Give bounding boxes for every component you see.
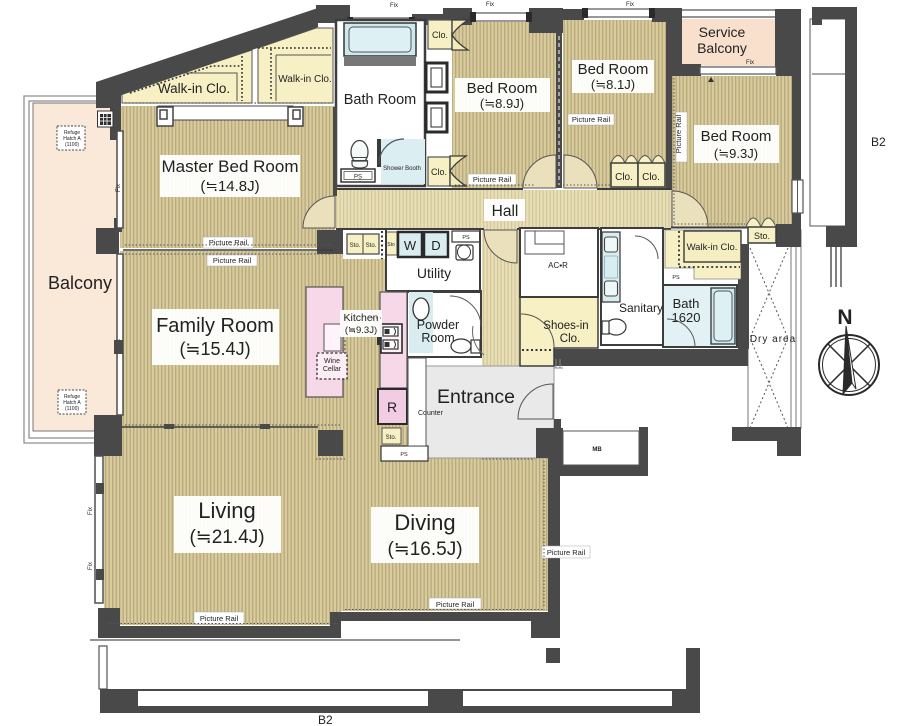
svg-text:(≒15.4J): (≒15.4J) xyxy=(179,339,250,359)
svg-text:Cellar: Cellar xyxy=(323,366,342,373)
svg-text:Picture Rail: Picture Rail xyxy=(674,115,683,154)
svg-text:Picture Rail: Picture Rail xyxy=(209,238,248,247)
svg-text:Room: Room xyxy=(421,331,454,345)
svg-text:PS: PS xyxy=(400,452,408,458)
svg-text:(≒16.5J): (≒16.5J) xyxy=(387,539,462,560)
svg-text:Clo.: Clo. xyxy=(615,172,633,183)
svg-text:(≒9.3J): (≒9.3J) xyxy=(714,146,758,161)
svg-text:Wine: Wine xyxy=(324,358,340,365)
svg-text:Fix: Fix xyxy=(116,184,122,192)
svg-text:(≒14.8J): (≒14.8J) xyxy=(200,178,259,195)
svg-text:PS: PS xyxy=(672,275,680,281)
svg-text:W: W xyxy=(404,238,417,253)
svg-text:R: R xyxy=(387,399,397,415)
svg-text:(1100): (1100) xyxy=(65,142,79,148)
svg-text:Sto.: Sto. xyxy=(366,243,377,249)
svg-text:AC▪R: AC▪R xyxy=(548,261,568,270)
svg-text:Picture Rail: Picture Rail xyxy=(547,548,586,557)
svg-text:Bed Room: Bed Room xyxy=(578,61,649,78)
svg-text:Picture Rail: Picture Rail xyxy=(572,115,611,124)
svg-text:Sto.: Sto. xyxy=(386,435,397,441)
svg-text:Hall: Hall xyxy=(492,203,519,220)
svg-text:Entrance: Entrance xyxy=(437,386,515,408)
svg-text:Bath: Bath xyxy=(673,296,700,311)
svg-text:Sto.: Sto. xyxy=(754,231,770,241)
svg-text:Fix: Fix xyxy=(390,3,398,9)
svg-text:Sto: Sto xyxy=(387,242,395,248)
svg-text:Bed Room: Bed Room xyxy=(467,80,538,97)
svg-text:Powder: Powder xyxy=(417,318,459,332)
svg-text:Counter: Counter xyxy=(418,410,444,417)
svg-text:Clo.: Clo. xyxy=(560,333,580,345)
svg-text:(≒8.9J): (≒8.9J) xyxy=(480,96,524,111)
svg-text:Master Bed Room: Master Bed Room xyxy=(162,157,299,176)
svg-text:MB: MB xyxy=(592,447,602,453)
svg-text:Fix: Fix xyxy=(88,562,94,570)
svg-text:Shower Booth: Shower Booth xyxy=(383,166,421,172)
svg-text:(≒8.1J): (≒8.1J) xyxy=(591,77,635,92)
svg-text:Clo.: Clo. xyxy=(431,167,447,177)
svg-text:Sto.: Sto. xyxy=(350,243,361,249)
svg-text:1620: 1620 xyxy=(672,310,701,325)
svg-text:Clo.: Clo. xyxy=(642,172,660,183)
svg-text:Walk-in Clo.: Walk-in Clo. xyxy=(158,81,230,96)
svg-text:Diving: Diving xyxy=(394,510,455,535)
svg-text:Dry area: Dry area xyxy=(750,334,796,345)
svg-text:Fix: Fix xyxy=(486,2,494,8)
svg-text:Fix: Fix xyxy=(746,60,754,66)
svg-text:Walk-in Clo.: Walk-in Clo. xyxy=(687,242,738,253)
svg-text:PS: PS xyxy=(354,175,362,181)
svg-text:(≒21.4J): (≒21.4J) xyxy=(189,527,264,548)
svg-text:B2: B2 xyxy=(871,135,886,149)
svg-text:Picture Rail: Picture Rail xyxy=(473,175,512,184)
svg-text:Bath Room: Bath Room xyxy=(344,92,417,108)
svg-text:Balcony: Balcony xyxy=(697,40,747,56)
svg-text:Balcony: Balcony xyxy=(48,273,112,293)
svg-text:B2: B2 xyxy=(318,713,333,726)
svg-text:Service: Service xyxy=(699,24,746,40)
svg-text:Living: Living xyxy=(198,498,255,523)
svg-text:Shoes-in: Shoes-in xyxy=(543,320,588,332)
svg-text:(≒9.3J): (≒9.3J) xyxy=(345,325,377,336)
svg-text:Fix: Fix xyxy=(626,2,634,8)
svg-text:Walk-in Clo.: Walk-in Clo. xyxy=(278,74,332,85)
svg-text:Picture Rail: Picture Rail xyxy=(200,614,239,623)
svg-text:Utility: Utility xyxy=(417,265,451,281)
svg-text:(1100): (1100) xyxy=(65,406,79,412)
svg-text:Bed Room: Bed Room xyxy=(701,128,772,145)
svg-text:Clo.: Clo. xyxy=(432,30,448,40)
svg-text:Family Room: Family Room xyxy=(156,315,274,337)
svg-text:N: N xyxy=(837,306,852,329)
svg-text:Picture Rail: Picture Rail xyxy=(436,600,475,609)
svg-text:PS: PS xyxy=(462,235,470,241)
svg-text:D: D xyxy=(431,238,440,253)
svg-text:Sanitary: Sanitary xyxy=(619,301,663,315)
svg-text:Fix: Fix xyxy=(88,507,94,515)
svg-text:Picture Rail: Picture Rail xyxy=(213,256,252,265)
